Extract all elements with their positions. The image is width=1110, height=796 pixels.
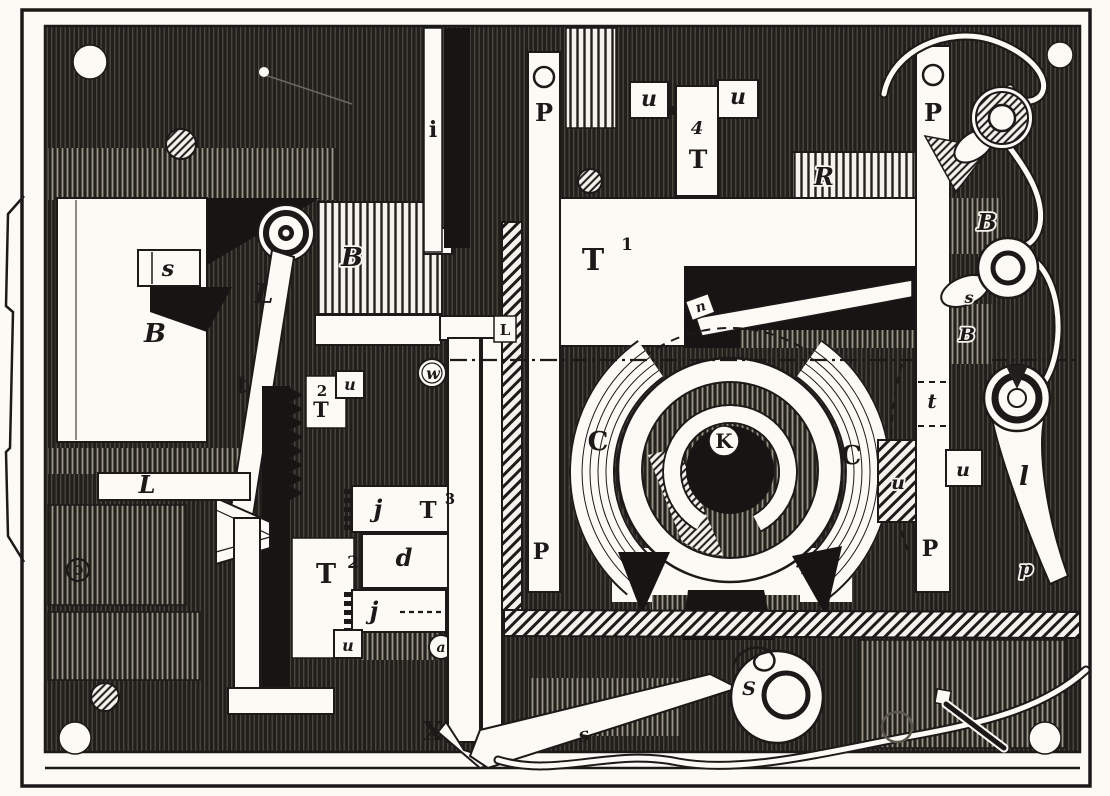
label-r-slide: R — [813, 162, 834, 191]
label-p-right-bottom: P — [922, 536, 939, 562]
label-l-guide: L — [138, 470, 156, 499]
label-t2-base: T — [316, 559, 336, 590]
label-l-lever: L — [254, 279, 274, 310]
label-b-magnet-left: B — [143, 319, 166, 349]
mounting-screw-top-left — [166, 129, 196, 159]
pivot-wheel — [258, 205, 314, 261]
label-p-club: p — [1019, 556, 1033, 580]
label-l-club: l — [1019, 462, 1029, 492]
label-u-bottom: u — [342, 636, 354, 655]
bar-hole — [534, 67, 554, 87]
armature-bar — [315, 315, 441, 345]
small-pin-hole — [259, 67, 269, 77]
label-t3-base: T — [419, 497, 436, 524]
r-slide-box — [792, 152, 918, 202]
label-t4-sup: 4 — [691, 118, 704, 139]
label-u-mid: u — [344, 375, 356, 394]
mounting-screw-bottom-left — [91, 683, 119, 711]
label-t1-sup: 1 — [621, 235, 633, 255]
label-t-right: t — [927, 389, 937, 413]
label-u-top-left: u — [641, 86, 657, 112]
pressing-bar-right — [916, 46, 950, 592]
hatched-bar — [502, 222, 522, 634]
t4-strip — [676, 86, 718, 196]
label-b-magnet-right: B — [340, 243, 363, 273]
label-i: i — [429, 117, 437, 143]
label-a-pivot: a — [436, 640, 445, 656]
corner-hole-bottom-right — [1029, 722, 1061, 754]
label-l-mid-small: L — [500, 321, 511, 339]
label-x-slide: X — [423, 717, 444, 747]
label-c-right: C — [841, 441, 862, 471]
engraving-canvas: i P P u u 4 T R T 1 n s B L B t u w 2 T … — [0, 0, 1110, 796]
label-u-right-hatch: u — [891, 472, 905, 494]
label-b-terminal-lower: B — [958, 324, 975, 346]
bar-hole — [923, 65, 943, 85]
label-t2-stack-base: T — [313, 397, 329, 422]
label-u-right-box: u — [956, 459, 970, 481]
slide-foot — [228, 688, 334, 714]
label-p-right-top: P — [924, 98, 942, 127]
corner-hole-bottom-left — [59, 722, 91, 754]
label-p-left-top: P — [535, 98, 553, 127]
label-s-stop: s — [161, 256, 174, 282]
label-t3-sup: 3 — [445, 490, 455, 508]
label-k-hub: K — [715, 429, 733, 453]
label-t1-base: T — [582, 243, 605, 278]
lever-head-hole — [764, 673, 808, 717]
type-wheel — [570, 328, 890, 640]
label-t2-sup: 2 — [347, 553, 359, 573]
x-slide-column-b — [482, 338, 502, 742]
label-t4-base: T — [689, 145, 708, 174]
label-d-slide: d — [396, 543, 413, 572]
dark-bar — [444, 28, 470, 248]
label-w-roller: w — [426, 364, 441, 383]
bottom-rail — [504, 610, 1080, 638]
label-s-terminal: s — [963, 288, 973, 307]
x-slide-column-a — [448, 338, 480, 742]
t1-platform — [560, 198, 916, 348]
label-p-left-bottom: P — [533, 539, 550, 565]
t3-bar — [352, 486, 454, 532]
engraving-page: i P P u u 4 T R T 1 n s B L B t u w 2 T … — [0, 0, 1110, 796]
slide-bar-left — [234, 518, 260, 708]
label-u-top-right: u — [730, 84, 746, 110]
pressing-bar-left — [528, 52, 560, 592]
label-s-lever-head: S — [742, 678, 756, 700]
corner-hole-top-right — [1047, 42, 1073, 68]
label-c-left: C — [588, 427, 609, 457]
label-t-armature: t — [236, 370, 247, 399]
mounting-screw-top-middle — [578, 169, 602, 193]
guide-bar-l — [98, 473, 250, 500]
label-b-terminal-upper: B — [976, 209, 996, 236]
corner-hole-top-left — [73, 45, 107, 79]
